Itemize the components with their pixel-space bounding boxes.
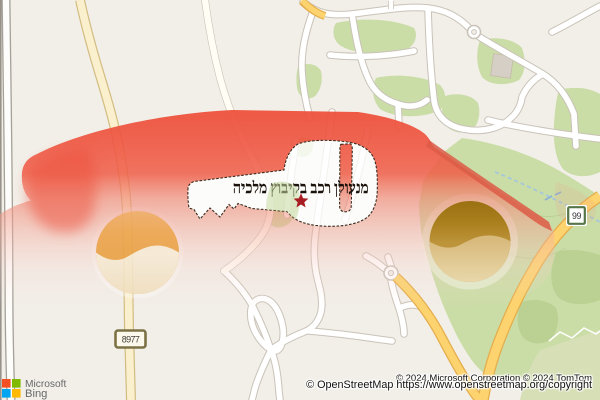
svg-text:8977: 8977: [122, 335, 140, 345]
svg-text:99: 99: [572, 211, 581, 221]
